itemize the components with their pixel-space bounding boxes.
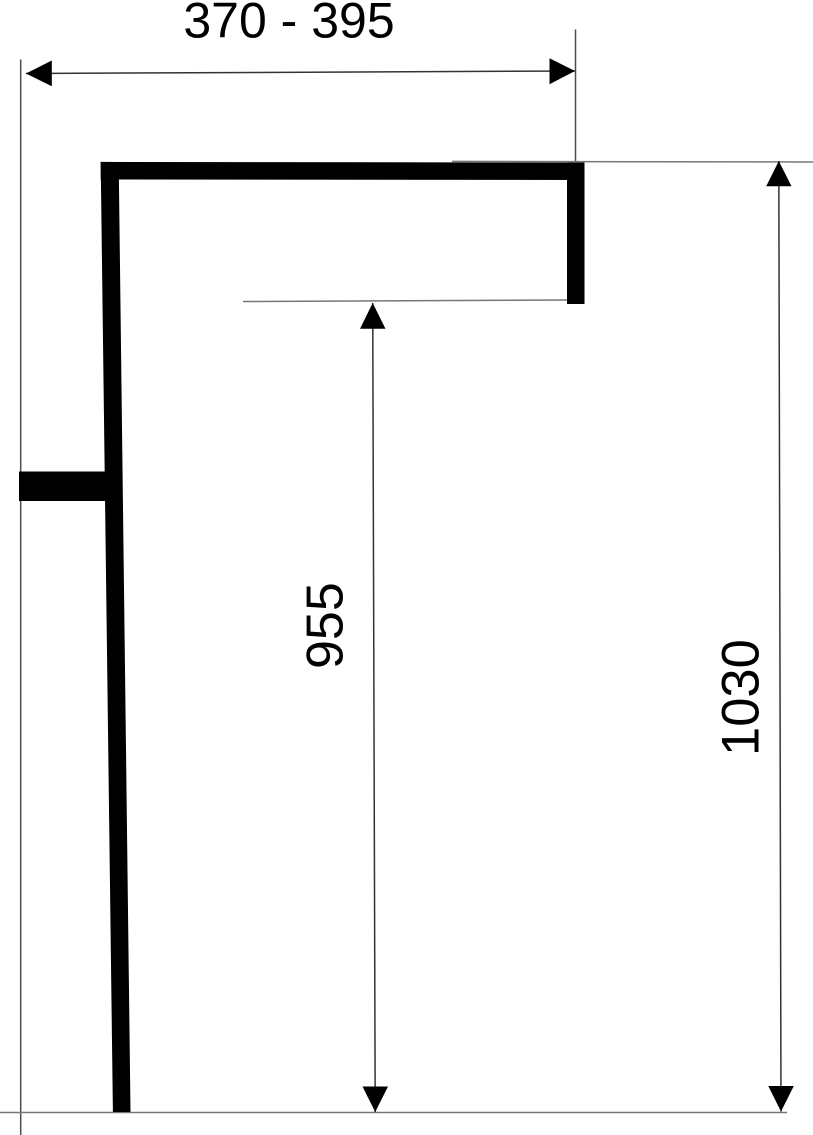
svg-text:370 - 395: 370 - 395 (183, 0, 394, 48)
svg-text:955: 955 (297, 582, 355, 669)
svg-text:1030: 1030 (712, 639, 771, 756)
